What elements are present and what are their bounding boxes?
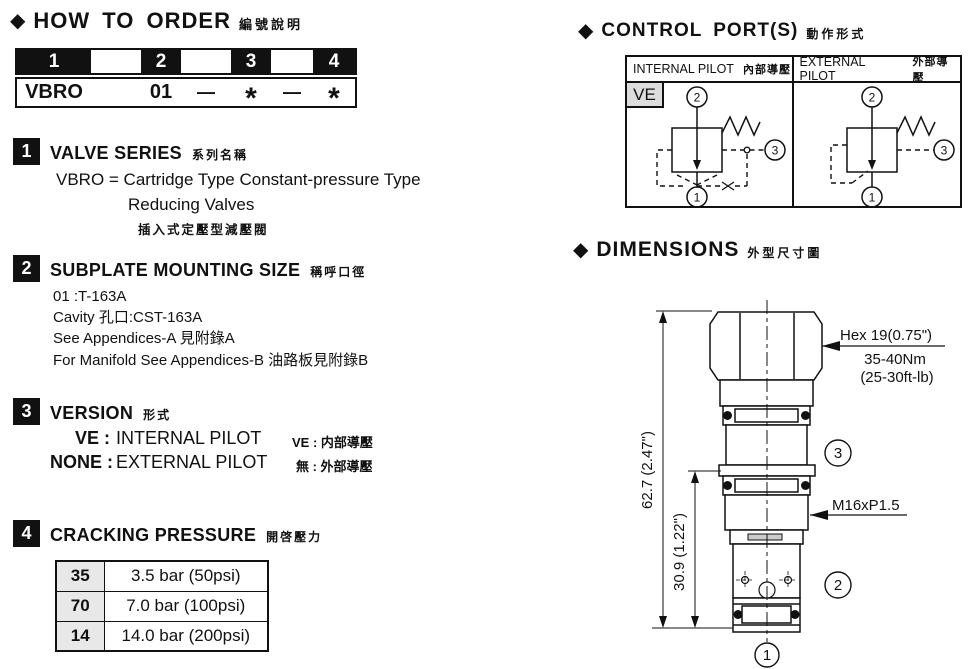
order-gap: [91, 50, 141, 73]
pressure-value-70: 7.0 bar (100psi): [104, 591, 268, 621]
external-pilot-header: EXTERNAL PILOT 外部導壓: [794, 57, 961, 83]
subplate-line3: See Appendices-A 見附錄A: [53, 327, 235, 348]
subplate-line1: 01 :T-163A: [53, 288, 126, 305]
version-code-none: NONE :: [50, 452, 110, 473]
control-ports-heading: ◆ CONTROL PORT(S) 動作形式: [578, 20, 866, 42]
internal-pilot-header: INTERNAL PILOT 內部導壓: [627, 57, 792, 83]
order-code-table: 1 2 3 4 VBRO 01 — * — *: [15, 48, 357, 108]
pressure-code-35: 35: [56, 561, 104, 591]
section-1-title-zh: 系列名稱: [192, 146, 248, 163]
table-row: 14 14.0 bar (200psi): [56, 621, 268, 651]
section-2-heading: SUBPLATE MOUNTING SIZE 稱呼口徑: [50, 260, 366, 281]
section-3-title-zh: 形式: [143, 406, 171, 423]
datasheet-page: ◆ HOW TO ORDER 編號說明 1 2 3 4 VBRO 01 — * …: [0, 0, 980, 669]
external-pilot-column: EXTERNAL PILOT 外部導壓: [794, 57, 961, 206]
order-code-series: VBRO: [17, 79, 91, 106]
port-2-label: 2: [694, 91, 701, 105]
diamond-icon: ◆: [578, 21, 593, 41]
port-3-label: 3: [940, 144, 947, 158]
section-4-title-zh: 開啓壓力: [266, 528, 322, 545]
diamond-icon: ◆: [10, 11, 25, 31]
drawing-port-1: 1: [763, 647, 771, 664]
section-3-number: 3: [13, 398, 40, 425]
order-gap: [181, 50, 231, 73]
section-4-heading: CRACKING PRESSURE 開啓壓力: [50, 525, 322, 546]
version-code-ve: VE :: [50, 428, 110, 449]
version-row-external: NONE : EXTERNAL PILOT: [50, 452, 267, 473]
subplate-line4: For Manifold See Appendices-B 油路板見附錄B: [53, 349, 368, 370]
order-gap: [91, 79, 141, 106]
dim-torque-lb-label: (25-30ft-lb): [860, 369, 933, 386]
internal-pilot-cell: VE: [627, 83, 792, 206]
control-ports-table: INTERNAL PILOT 內部導壓 VE: [625, 55, 962, 208]
external-pilot-cell: 2 3 1: [794, 83, 961, 206]
dimension-drawing: 62.7 (2.47") 30.9 (1.22") Hex 19(0.75") …: [600, 280, 980, 669]
valve-series-line1: VBRO = Cartridge Type Constant-pressure …: [56, 170, 421, 190]
version-row-internal: VE : INTERNAL PILOT: [50, 428, 261, 449]
dim-torque-label: 35-40Nm: [864, 351, 926, 368]
port-1-label: 1: [694, 191, 701, 205]
order-code-value-row: VBRO 01 — * — *: [15, 77, 357, 108]
order-pos-4: 4: [313, 50, 355, 73]
pressure-value-35: 3.5 bar (50psi): [104, 561, 268, 591]
order-code-dash: —: [181, 79, 231, 106]
how-to-order-title-zh: 編號說明: [239, 10, 303, 33]
order-code-dash: —: [271, 79, 313, 106]
diamond-icon: ◆: [573, 240, 588, 260]
external-pilot-symbol: 2 3 1: [794, 83, 959, 209]
control-ports-title-zh: 動作形式: [806, 21, 866, 42]
valve-series-line2: Reducing Valves: [128, 195, 254, 215]
section-3-heading: VERSION 形式: [50, 403, 171, 424]
external-pilot-label: EXTERNAL PILOT: [800, 55, 904, 83]
port-2-label: 2: [868, 91, 875, 105]
section-4-number: 4: [13, 520, 40, 547]
version-zh-internal: VE : 内部導壓: [292, 432, 373, 451]
order-pos-2: 2: [141, 50, 181, 73]
cracking-pressure-table: 35 3.5 bar (50psi) 70 7.0 bar (100psi) 1…: [55, 560, 269, 652]
order-code-header-row: 1 2 3 4: [15, 48, 357, 75]
valve-series-line3-zh: 插入式定壓型減壓閥: [138, 219, 269, 238]
section-2-title: SUBPLATE MOUNTING SIZE: [50, 260, 300, 281]
section-2-title-zh: 稱呼口徑: [310, 263, 366, 280]
dim-lower-height: 30.9 (1.22"): [671, 513, 688, 591]
order-pos-1: 1: [17, 50, 91, 73]
order-code-size: 01: [141, 79, 181, 106]
version-value-internal: INTERNAL PILOT: [116, 428, 261, 449]
pressure-code-14: 14: [56, 621, 104, 651]
internal-pilot-label-zh: 內部導壓: [743, 61, 791, 77]
dim-thread-label: M16xP1.5: [832, 497, 900, 514]
how-to-order-title: HOW TO ORDER: [33, 8, 231, 34]
dim-hex-label: Hex 19(0.75"): [840, 327, 932, 344]
subplate-line2: Cavity 孔口:CST-163A: [53, 306, 202, 327]
dimensions-title: DIMENSIONS: [596, 238, 739, 262]
how-to-order-heading: ◆ HOW TO ORDER 編號說明: [10, 8, 303, 34]
section-1-title: VALVE SERIES: [50, 143, 182, 164]
control-ports-title: CONTROL PORT(S): [601, 20, 798, 42]
section-1-number: 1: [13, 138, 40, 165]
port-1-label: 1: [868, 191, 875, 205]
ve-badge: VE: [627, 83, 664, 108]
version-value-external: EXTERNAL PILOT: [116, 452, 267, 473]
order-gap: [271, 50, 313, 73]
order-code-version-star: *: [231, 85, 271, 112]
internal-pilot-column: INTERNAL PILOT 內部導壓 VE: [627, 57, 794, 206]
order-code-pressure-star: *: [313, 85, 355, 112]
drawing-port-3: 3: [834, 445, 842, 462]
table-row: 70 7.0 bar (100psi): [56, 591, 268, 621]
section-1-heading: VALVE SERIES 系列名稱: [50, 143, 248, 164]
dimensions-title-zh: 外型尺寸圖: [747, 240, 822, 261]
section-3-title: VERSION: [50, 403, 133, 424]
dim-total-height: 62.7 (2.47"): [639, 431, 656, 509]
dimensions-heading: ◆ DIMENSIONS 外型尺寸圖: [573, 238, 822, 262]
table-row: 35 3.5 bar (50psi): [56, 561, 268, 591]
port-3-label: 3: [772, 144, 779, 158]
pressure-value-14: 14.0 bar (200psi): [104, 621, 268, 651]
pressure-code-70: 70: [56, 591, 104, 621]
drawing-port-2: 2: [834, 577, 842, 594]
order-pos-3: 3: [231, 50, 271, 73]
section-2-number: 2: [13, 255, 40, 282]
version-zh-external: 無 : 外部導壓: [296, 456, 373, 475]
external-pilot-label-zh: 外部導壓: [913, 53, 960, 85]
section-4-title: CRACKING PRESSURE: [50, 525, 256, 546]
internal-pilot-label: INTERNAL PILOT: [633, 62, 734, 76]
